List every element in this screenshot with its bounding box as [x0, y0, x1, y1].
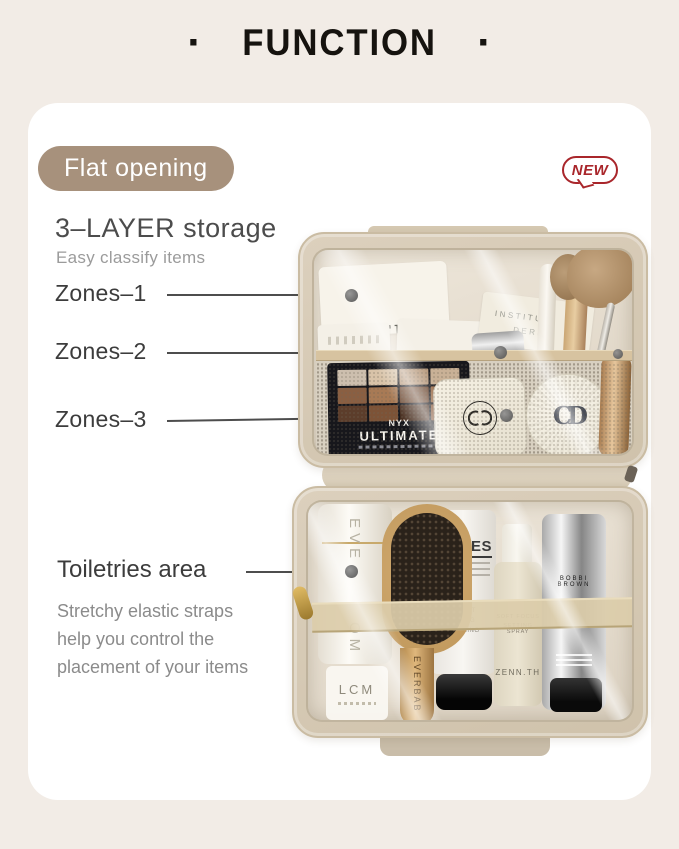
- spray-brand: ZENN.TH: [494, 668, 542, 677]
- rose-gold-tube: [598, 354, 632, 456]
- setting-spray-cap: [502, 524, 532, 566]
- toiletries-line-2: help you control the: [57, 625, 272, 653]
- dior-compact: CD: [526, 374, 610, 456]
- header: · FUNCTION ·: [0, 22, 679, 64]
- title-left-dot-icon: ·: [187, 23, 202, 63]
- brush-brand: EVERBAB: [412, 656, 422, 713]
- silver-tube-text-lines: [556, 654, 592, 666]
- title-right-dot-icon: ·: [477, 23, 492, 63]
- nyx-subtext-bar: [359, 444, 441, 448]
- flat-opening-badge: Flat opening: [38, 146, 234, 191]
- wooden-hair-brush: [382, 504, 472, 654]
- roll-vertical-text-top: EVE: [346, 518, 363, 563]
- setting-spray-bottle: SOFT FOCUS SETTING SPRAY ZENN.TH: [494, 562, 542, 706]
- storage-subheading: Easy classify items: [56, 248, 205, 268]
- lcm-subtext-bar: [338, 702, 376, 705]
- toiletries-line-1: Stretchy elastic straps: [57, 597, 272, 625]
- lcm-small-bottle: LCM: [326, 666, 388, 720]
- zone-1-label: Zones–1: [55, 280, 147, 307]
- toiletries-description: Stretchy elastic straps help you control…: [57, 597, 272, 681]
- elastic-snap-button: [613, 349, 623, 359]
- chanel-cc-logo-icon: [462, 400, 497, 435]
- toiletries-heading: Toiletries area: [57, 556, 206, 584]
- white-roll-bottle: EVE OM: [318, 504, 392, 664]
- series-tube-black-cap: [436, 674, 492, 710]
- toiletries-line-3: placement of your items: [57, 653, 272, 681]
- wooden-brush-handle: EVERBAB: [400, 648, 434, 722]
- chanel-compact: [433, 376, 528, 456]
- bottom-compartment-window: EVE OM LCM SERIES EXFOLIANT PURIFYING SM…: [306, 500, 634, 722]
- toiletries-snap-button: [345, 565, 358, 578]
- zone-3-snap-button: [500, 409, 513, 422]
- silver-tube-black-cap: [550, 678, 602, 712]
- silver-tube-brand: BOBBI BROWN: [542, 576, 606, 588]
- makeup-brush-large: [567, 248, 634, 308]
- mesh-pocket-elastic-band: [316, 350, 634, 361]
- product-infographic: · FUNCTION · Flat opening NEW 3–LAYER st…: [0, 0, 679, 849]
- storage-heading: 3–LAYER storage: [55, 213, 277, 244]
- top-compartment-window: SHERO INSTITUT DERM NYX ULTIMATE: [312, 248, 634, 456]
- lcm-brand: LCM: [326, 682, 388, 697]
- page-title: FUNCTION: [242, 22, 437, 64]
- zone-1-snap-button: [345, 289, 358, 302]
- elastic-strap: [312, 597, 634, 633]
- dior-cd-logo-icon: CD: [553, 401, 583, 430]
- new-badge: NEW: [562, 156, 618, 184]
- zone-2-label: Zones–2: [55, 338, 147, 365]
- small-card-text-lines: [328, 335, 380, 345]
- zone-2-snap-button: [494, 346, 507, 359]
- zone-3-label: Zones–3: [55, 406, 147, 433]
